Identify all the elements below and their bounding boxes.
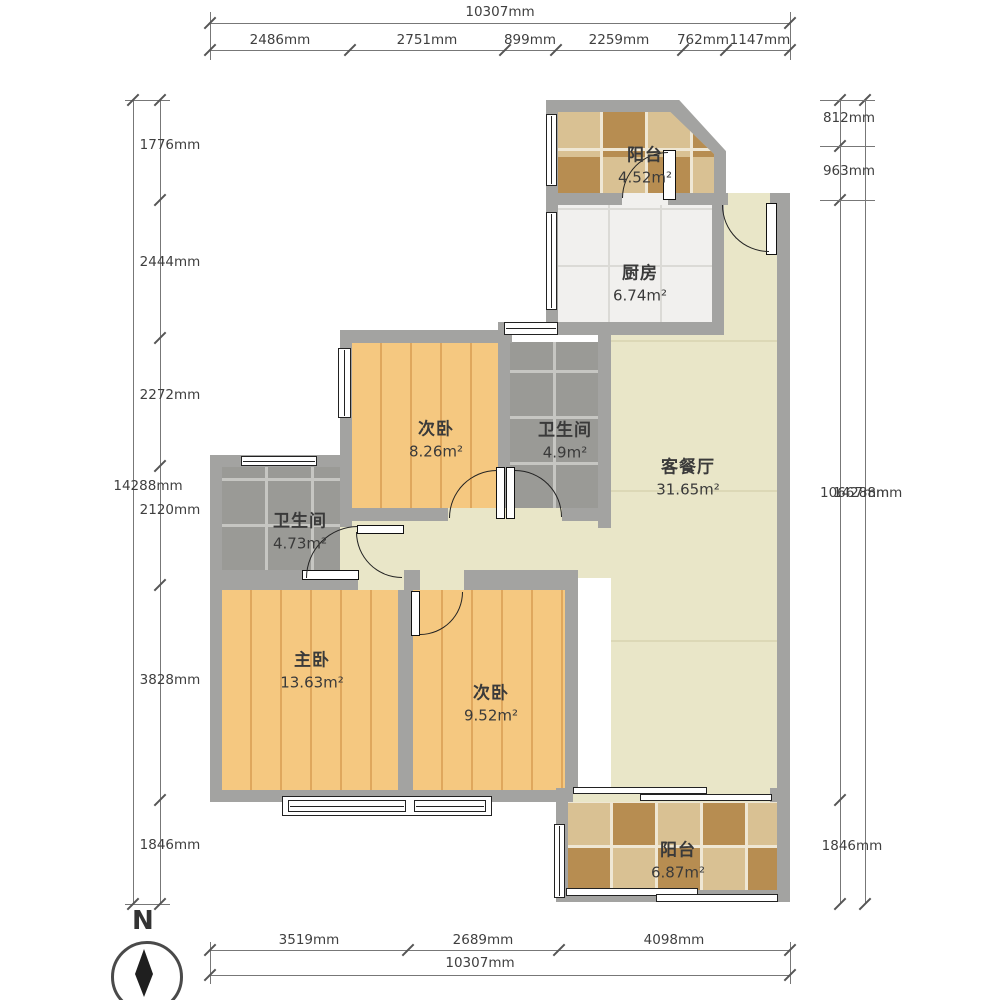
dim-left-seg: 2444mm bbox=[140, 254, 201, 270]
bay-window bbox=[288, 800, 406, 812]
room-area: 4.9m² bbox=[538, 442, 592, 462]
dim-top-seg: 1147mm bbox=[730, 32, 791, 48]
room-label-living-dining: 客餐厅 31.65m² bbox=[656, 456, 720, 499]
dim-left-seg: 2120mm bbox=[140, 502, 201, 518]
wall bbox=[777, 193, 790, 802]
window bbox=[241, 456, 317, 466]
dim-right-seg: 1846mm bbox=[822, 838, 883, 854]
dim-bottom-seg: 2689mm bbox=[453, 932, 514, 948]
wall bbox=[777, 800, 790, 902]
dim-right-total: 14288mm bbox=[833, 485, 902, 501]
room-name: 卫生间 bbox=[538, 419, 592, 442]
room-label-bathroom-west: 卫生间 4.73m² bbox=[273, 510, 327, 553]
window bbox=[554, 824, 565, 898]
dim-top-seg: 899mm bbox=[504, 32, 556, 48]
window bbox=[504, 322, 558, 335]
room-area: 4.73m² bbox=[273, 533, 327, 553]
room-label-balcony-bottom: 阳台 6.87m² bbox=[651, 839, 705, 882]
room-label-bedroom-third: 次卧 9.52m² bbox=[464, 682, 518, 725]
dim-top-seg: 762mm bbox=[677, 32, 729, 48]
dim-left-total: 14288mm bbox=[113, 478, 182, 494]
room-name: 次卧 bbox=[464, 682, 518, 705]
dim-left-seg: 1846mm bbox=[140, 837, 201, 853]
sliding-door-panel bbox=[640, 794, 772, 801]
bedroom-third-door-leaf bbox=[411, 591, 420, 636]
bay-window bbox=[414, 800, 486, 812]
room-name: 主卧 bbox=[280, 649, 344, 672]
room-name: 阳台 bbox=[651, 839, 705, 862]
extension-line bbox=[820, 100, 875, 101]
dim-bottom-seg: 3519mm bbox=[279, 932, 340, 948]
wall bbox=[210, 455, 222, 802]
room-name: 卫生间 bbox=[273, 510, 327, 533]
dim-left-seg: 2272mm bbox=[140, 387, 201, 403]
dim-right-seg: 812mm bbox=[823, 110, 875, 126]
dim-top-total: 10307mm bbox=[465, 4, 534, 20]
window bbox=[546, 114, 557, 186]
room-area: 31.65m² bbox=[656, 479, 720, 499]
room-label-bedroom-second: 次卧 8.26m² bbox=[409, 418, 463, 461]
door-opening bbox=[728, 193, 770, 205]
floor-plan-canvas: 阳台 4.52m² 厨房 6.74m² 次卧 8.26m² 卫生间 4.9m² … bbox=[0, 0, 1000, 1000]
dimension-line bbox=[865, 100, 866, 904]
dim-bottom-total: 10307mm bbox=[445, 955, 514, 971]
sliding-door-panel bbox=[573, 787, 707, 794]
sliding-window bbox=[656, 894, 778, 902]
room-name: 客餐厅 bbox=[656, 456, 720, 479]
wall bbox=[565, 570, 578, 802]
room-label-master-bedroom: 主卧 13.63m² bbox=[280, 649, 344, 692]
dimension-line bbox=[210, 950, 790, 951]
dim-left-seg: 1776mm bbox=[140, 137, 201, 153]
dimension-line bbox=[840, 100, 841, 904]
living-dining-floor bbox=[611, 335, 777, 790]
dim-top-seg: 2486mm bbox=[250, 32, 311, 48]
room-label-balcony-top: 阳台 4.52m² bbox=[618, 144, 672, 187]
dimension-line bbox=[210, 50, 790, 51]
dim-left-seg: 3828mm bbox=[140, 672, 201, 688]
wall bbox=[340, 330, 512, 343]
room-area: 13.63m² bbox=[280, 672, 344, 692]
room-name: 阳台 bbox=[618, 144, 672, 167]
bathroom-east-door-leaf bbox=[506, 467, 515, 519]
dim-bottom-seg: 4098mm bbox=[644, 932, 705, 948]
room-area: 6.87m² bbox=[651, 862, 705, 882]
dim-top-seg: 2259mm bbox=[589, 32, 650, 48]
extension-line bbox=[820, 146, 875, 147]
dimension-line bbox=[210, 975, 790, 976]
bedroom-second-door-leaf bbox=[496, 467, 505, 519]
room-area: 8.26m² bbox=[409, 441, 463, 461]
room-area: 4.52m² bbox=[618, 167, 672, 187]
room-area: 6.74m² bbox=[613, 285, 667, 305]
room-label-bathroom-east: 卫生间 4.9m² bbox=[538, 419, 592, 462]
window bbox=[546, 212, 557, 310]
compass-north-label: N bbox=[132, 906, 154, 936]
dimension-line bbox=[210, 23, 790, 24]
dim-right-seg: 963mm bbox=[823, 163, 875, 179]
dim-top-seg: 2751mm bbox=[397, 32, 458, 48]
room-name: 厨房 bbox=[613, 262, 667, 285]
door-opening bbox=[420, 570, 464, 590]
room-area: 9.52m² bbox=[464, 705, 518, 725]
extension-line bbox=[820, 200, 875, 201]
window bbox=[338, 348, 351, 418]
dimension-line bbox=[133, 100, 134, 904]
compass-needle-icon bbox=[111, 941, 177, 1000]
room-label-kitchen: 厨房 6.74m² bbox=[613, 262, 667, 305]
room-name: 次卧 bbox=[409, 418, 463, 441]
wall bbox=[598, 330, 611, 528]
